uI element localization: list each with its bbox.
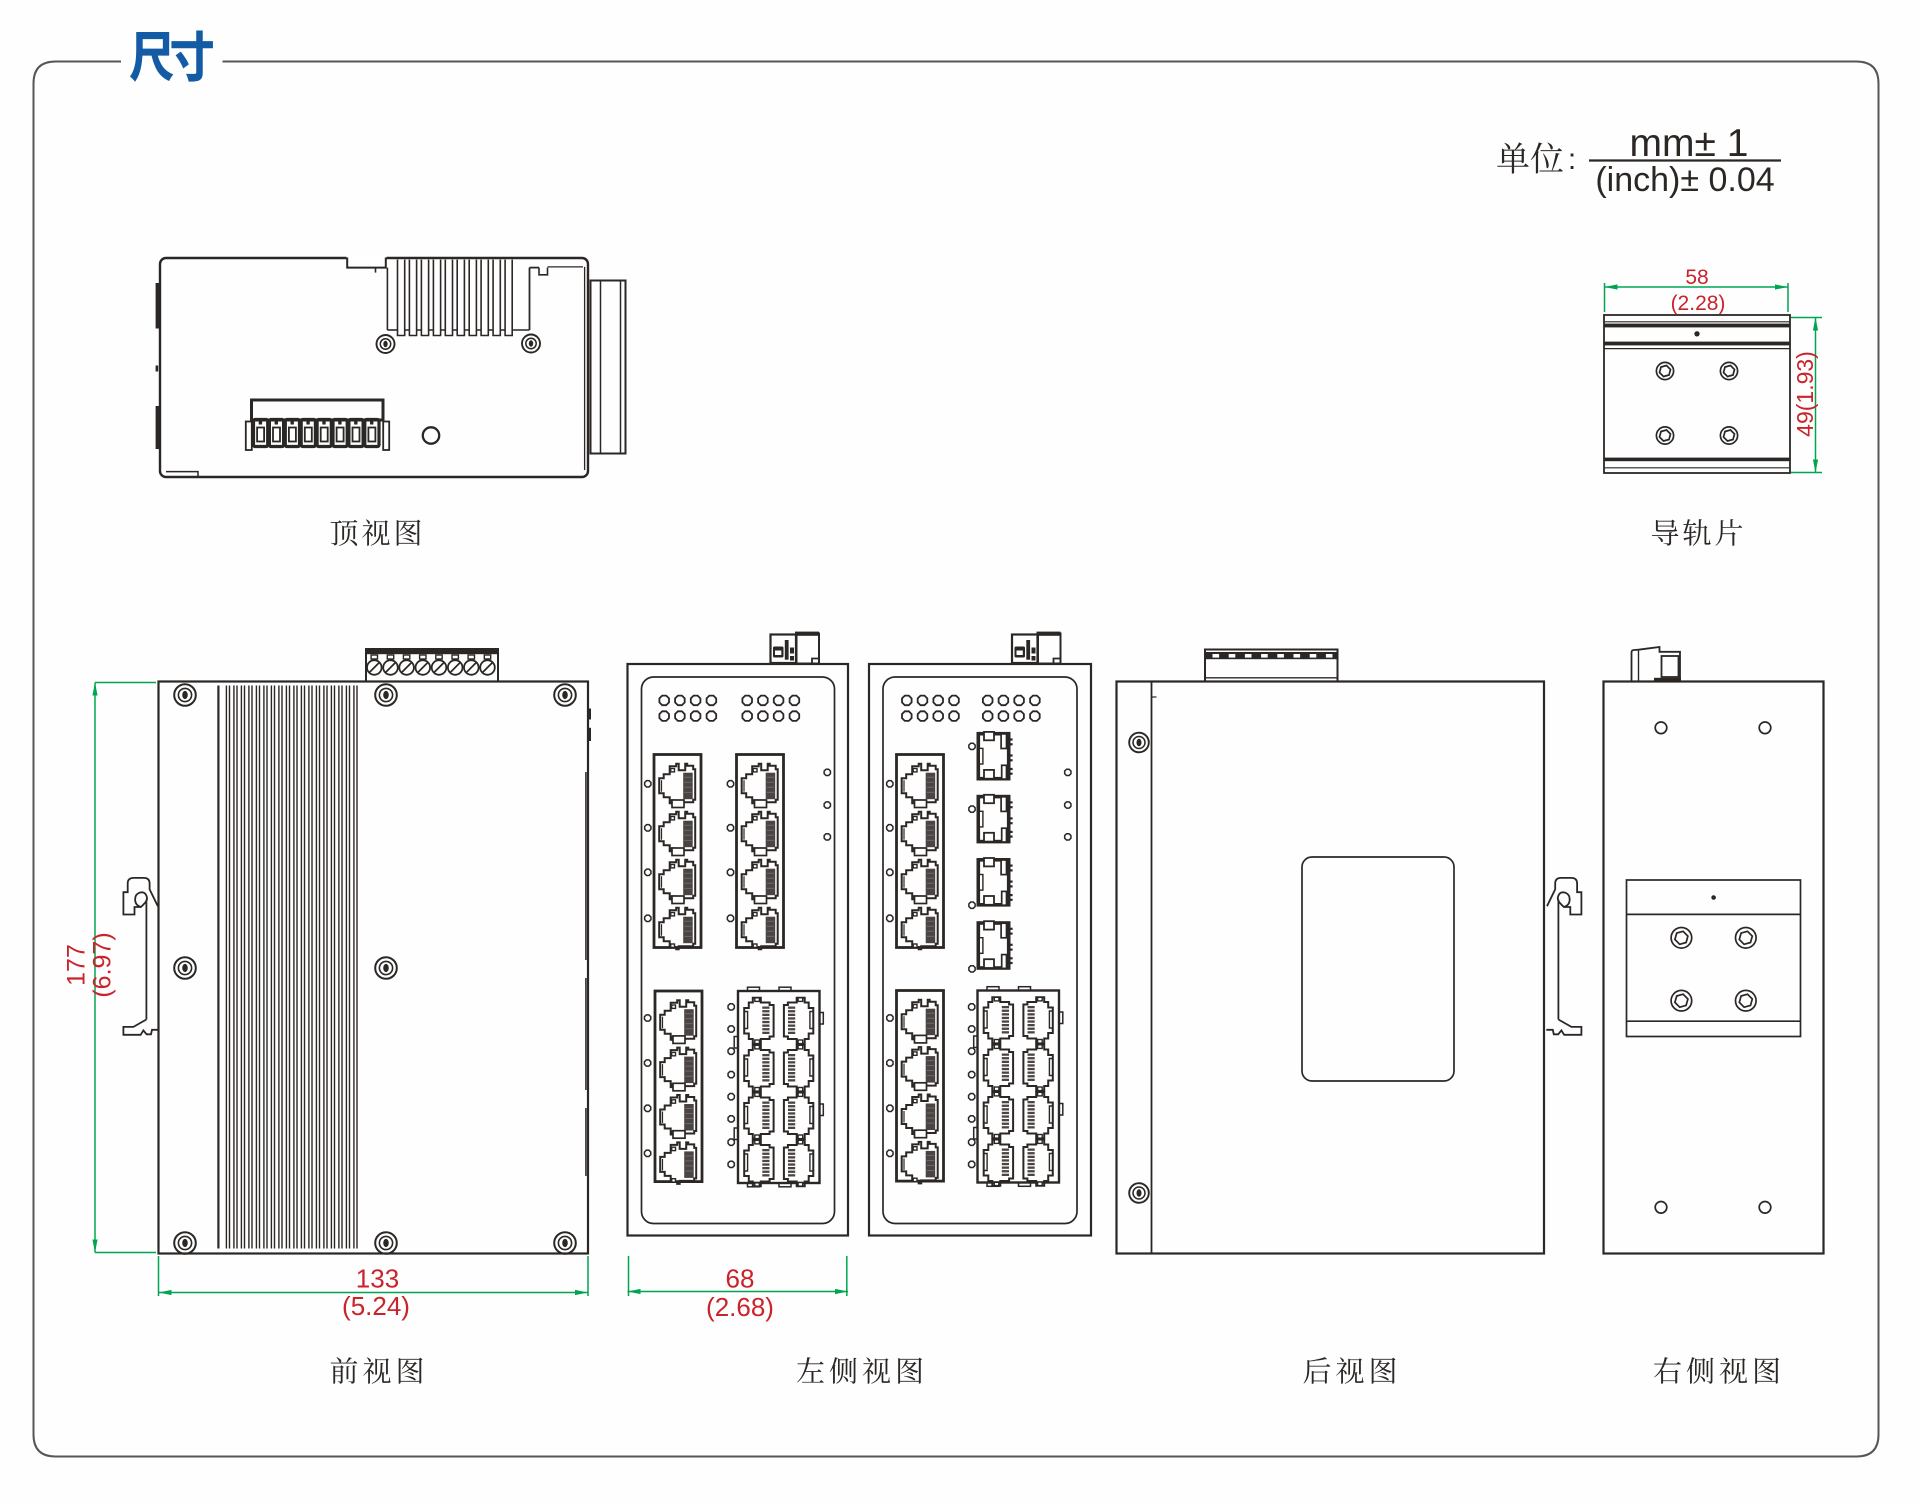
svg-text:(5.24): (5.24)	[342, 1291, 410, 1321]
svg-text:(6.97): (6.97)	[89, 932, 117, 997]
svg-text:133: 133	[356, 1264, 399, 1294]
svg-text:(2.68): (2.68)	[706, 1292, 774, 1322]
svg-text:(2.28): (2.28)	[1671, 292, 1726, 315]
svg-text:mm± 1: mm± 1	[1630, 122, 1749, 165]
svg-text:58: 58	[1685, 266, 1708, 289]
svg-text:(inch)± 0.04: (inch)± 0.04	[1595, 161, 1774, 199]
svg-text::: :	[1568, 143, 1576, 176]
svg-text:177: 177	[63, 944, 91, 986]
svg-text:68: 68	[726, 1264, 755, 1294]
svg-text:49(1.93): 49(1.93)	[1792, 351, 1818, 437]
